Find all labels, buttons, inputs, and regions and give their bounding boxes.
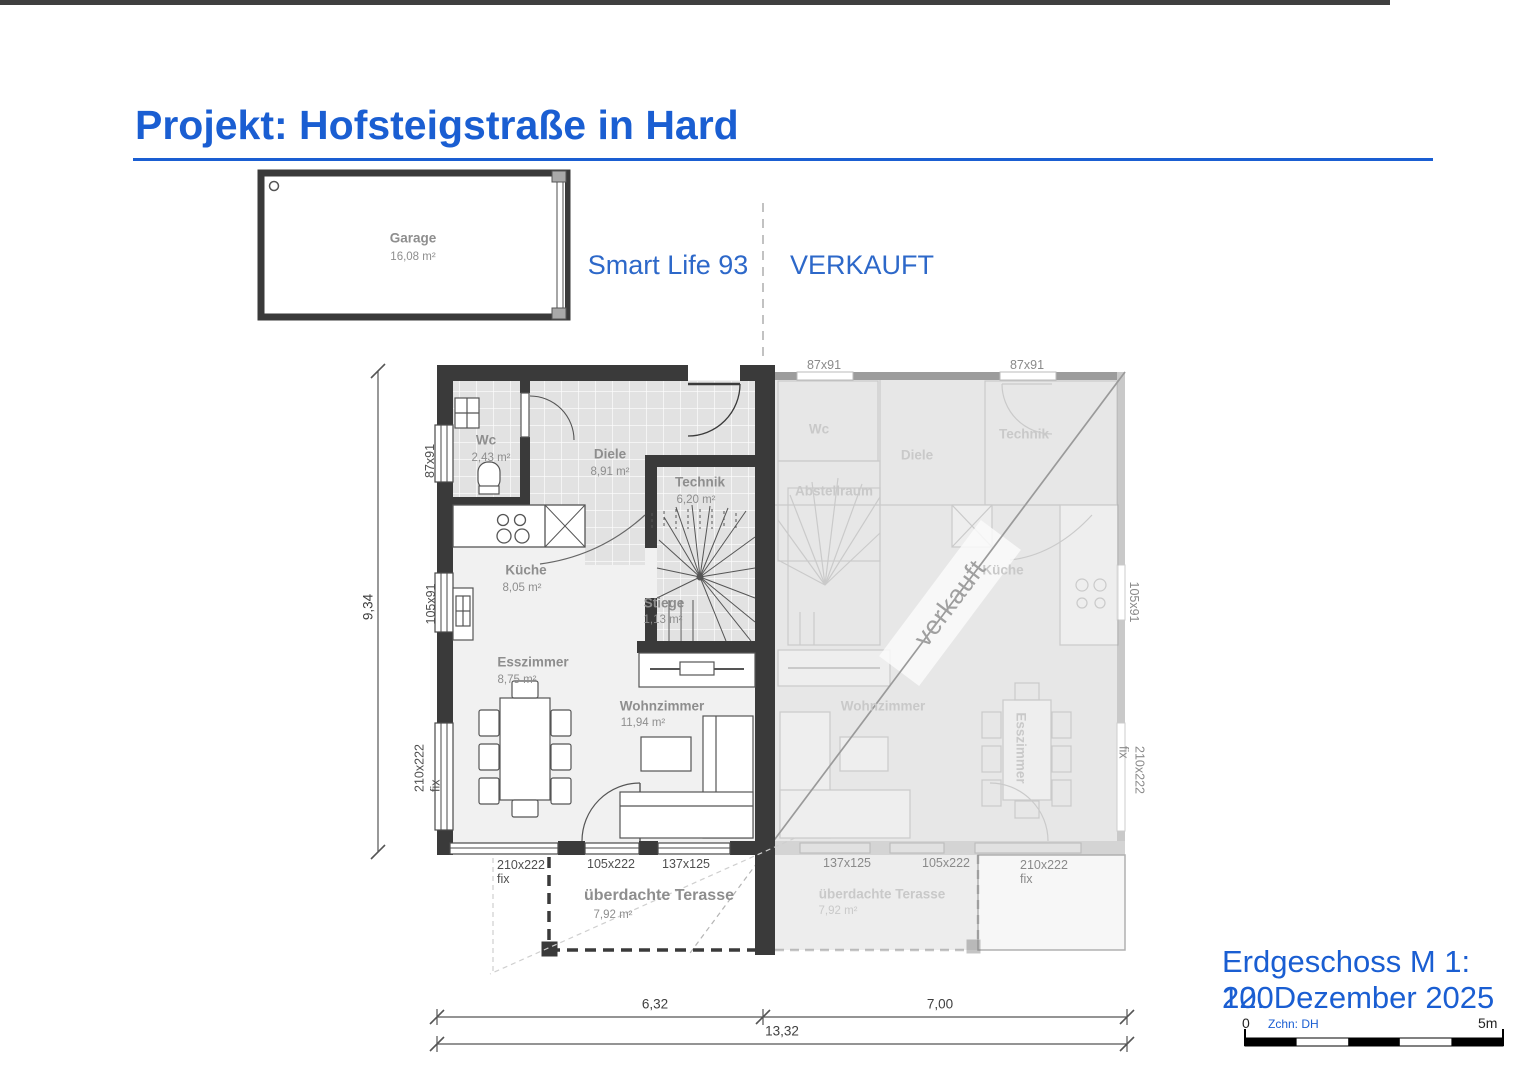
room-technik-label: Technik [675,475,725,492]
mirror-room-abstellraum: Abstellraum [795,484,873,501]
window-137x125-bottom: 137x125 [662,857,710,873]
window-87x91-right-top-1: 87x91 [807,358,841,374]
room-kueche-label: Küche [505,563,546,580]
room-wc-area: 2,43 m² [472,451,511,465]
scale-end-label: 5m [1478,1015,1497,1031]
scale-zero-label: 0 [1242,1015,1250,1031]
window-105x222-right: 105x222 [922,856,970,872]
room-kueche-area: 8,05 m² [503,581,542,595]
wc-basin [455,398,479,428]
room-esszimmer-label: Esszimmer [497,655,568,672]
room-technik-area: 6,20 m² [677,493,716,507]
dim-width-right: 7,00 [927,997,953,1014]
mirror-room-wc: Wc [809,422,829,439]
dim-width-left: 6,32 [642,997,668,1014]
kitchen-sink [453,588,473,640]
scale-bar [1245,1029,1503,1046]
mirror-room-esszimmer: Esszimmer [1012,712,1029,783]
kitchen-counter [453,505,585,547]
garage-label: Garage [390,231,437,248]
tv-sideboard [639,653,755,687]
window-137x125-right: 137x125 [823,856,871,872]
mirror-room-wohnzimmer: Wohnzimmer [841,699,926,716]
room-diele-label: Diele [594,447,626,464]
unit-status-verkauft: VERKAUFT [790,249,934,283]
drawn-by-label: Zchn: DH [1268,1017,1319,1031]
dim-width-total: 13,32 [765,1024,799,1041]
mirror-room-technik: Technik [999,427,1049,444]
floorplan-page: Projekt: Hofsteigstraße in Hard [0,0,1527,1080]
room-diele-area: 8,91 m² [591,465,630,479]
wc-toilet [478,462,500,494]
window-105x91-left: 105x91 [424,583,440,624]
window-210x222-left: 210x222fix [412,744,443,792]
mirror-room-terrasse: überdachte Terasse [819,887,946,904]
floorplan-drawing [0,0,1527,1080]
room-terrasse-area: 7,92 m² [594,908,633,922]
room-stiege-area: 1,13 m² [644,613,683,627]
plan-date: 22. Dezember 2025 [1222,980,1494,1016]
window-210x222-bottom: 210x222fix [497,858,545,886]
mirror-room-diele: Diele [901,448,933,465]
room-stiege-label: Stiege [644,596,685,613]
room-wc-label: Wc [476,433,496,450]
room-terrasse-label: überdachte Terasse [584,886,734,906]
window-210x222-right: 210x222fix [1115,746,1146,794]
garage-drain-symbol [270,182,279,191]
bottom-wall-windows [450,843,730,854]
window-87x91-right-top-2: 87x91 [1010,358,1044,374]
unit-name: Smart Life 93 [588,249,749,283]
window-87x91-left: 87x91 [423,444,439,478]
room-wohnzimmer-area: 11,94 m² [621,716,666,730]
room-wohnzimmer-label: Wohnzimmer [620,699,705,716]
dim-height-total: 9,34 [361,594,378,620]
window-210x222-right-bottom: 210x222fix [1020,858,1068,886]
window-105x222-bottom: 105x222 [587,857,635,873]
window-105x91-right: 105x91 [1125,581,1141,622]
garage-area: 16,08 m² [390,250,435,264]
coffee-table [641,737,691,771]
mirror-room-terrasse-area: 7,92 m² [819,904,858,918]
terrace-outline [542,857,762,956]
room-esszimmer-area: 8,75 m² [498,673,537,687]
